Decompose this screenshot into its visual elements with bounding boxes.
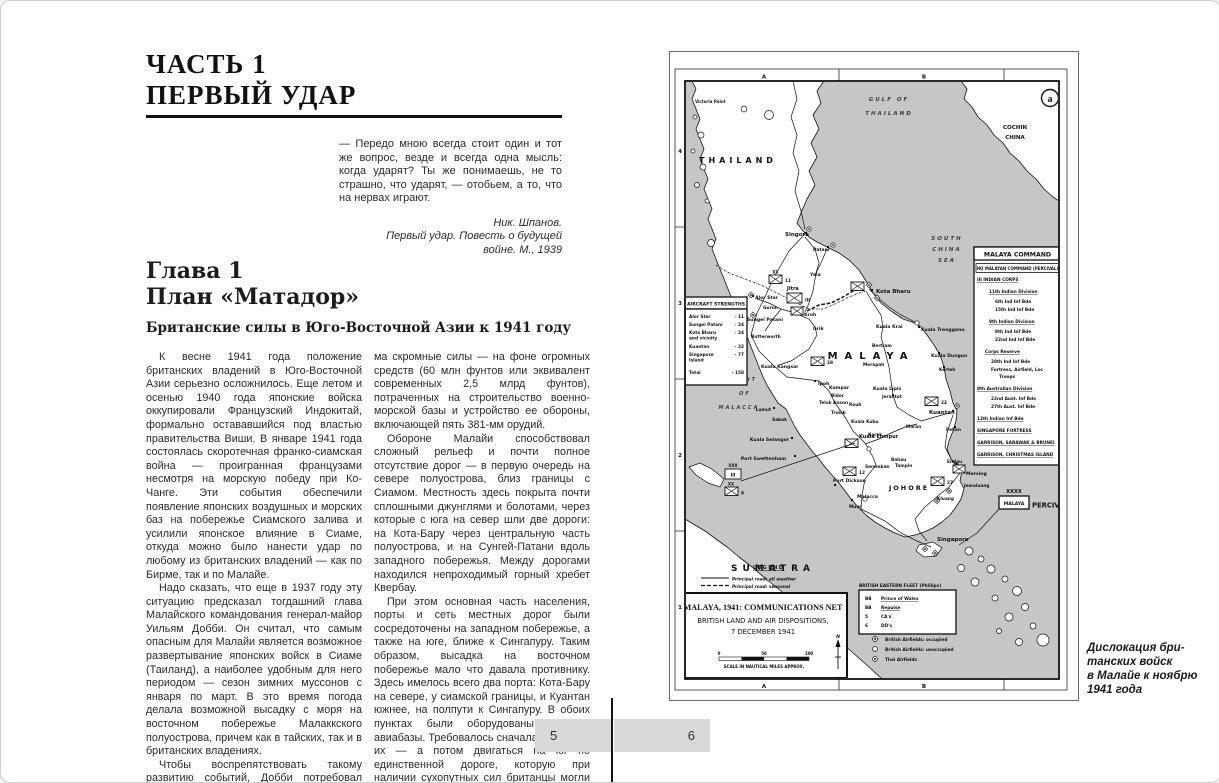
svg-text:SEA: SEA — [938, 258, 956, 264]
svg-text:XX: XX — [772, 270, 778, 275]
svg-text:12th Indian Inf Bde: 12th Indian Inf Bde — [977, 416, 1024, 422]
page-number-left: 5 — [550, 728, 557, 743]
paragraph: Надо сказать, что еще в 1937 году эту си… — [146, 582, 362, 759]
svg-text:Malacca: Malacca — [857, 494, 878, 500]
svg-text:Lumut: Lumut — [756, 407, 771, 413]
svg-text:27: 27 — [947, 480, 953, 486]
svg-text:2: 2 — [678, 453, 682, 459]
svg-text:AIRCRAFT STRENGTHS: AIRCRAFT STRENGTHS — [687, 302, 745, 308]
footer-bar-left: 5 — [535, 719, 612, 752]
svg-text:Kuala Kangsar: Kuala Kangsar — [761, 364, 799, 370]
svg-text:7 DECEMBER 1941: 7 DECEMBER 1941 — [731, 628, 795, 636]
svg-text:Yala: Yala — [809, 272, 821, 278]
svg-text:- 24: - 24 — [735, 322, 744, 328]
svg-text:MALAYA: MALAYA — [1004, 501, 1025, 507]
paragraph: К весне 1941 года положение британских в… — [146, 351, 362, 582]
svg-text:- 24: - 24 — [735, 330, 744, 336]
svg-text:B: B — [922, 684, 926, 690]
svg-text:Alor Star: Alor Star — [689, 314, 711, 320]
svg-text:- 158: - 158 — [732, 370, 744, 376]
svg-text:Kuala Lipis: Kuala Lipis — [873, 386, 901, 392]
svg-text:and vicinity: and vicinity — [689, 336, 717, 342]
svg-text:Fortress, Airfield, Loc: Fortress, Airfield, Loc — [991, 367, 1044, 373]
svg-text:11th Indian Division: 11th Indian Division — [989, 289, 1038, 295]
map-sheet: A B A B 4 3 2 1 — [669, 51, 1079, 701]
svg-text:Tampin: Tampin — [895, 463, 912, 469]
svg-text:SCALE IN NAUTICAL MILES APPROX: SCALE IN NAUTICAL MILES APPROX. — [724, 664, 805, 669]
aircraft-strengths-box: AIRCRAFT STRENGTHS Alor Star- 11 Sungei … — [685, 297, 747, 385]
svg-text:XX: XX — [728, 482, 734, 487]
svg-text:Kluang: Kluang — [937, 496, 954, 502]
svg-text:Maran: Maran — [906, 424, 921, 430]
svg-text:Island: Island — [689, 358, 704, 364]
svg-text:SINGAPORE FORTRESS: SINGAPORE FORTRESS — [977, 428, 1032, 434]
svg-text:GULF OF: GULF OF — [869, 97, 910, 103]
svg-text:Mersing: Mersing — [966, 471, 987, 477]
svg-text:- 11: - 11 — [735, 314, 744, 320]
map-caption: Дислокация бри- танских войск в Малайе к… — [1087, 641, 1215, 697]
svg-text:Kuala Kubu: Kuala Kubu — [851, 419, 879, 425]
svg-text:Pekan: Pekan — [946, 427, 961, 433]
svg-text:Sungei Patani: Sungei Patani — [747, 317, 783, 323]
svg-text:Bertram: Bertram — [872, 343, 892, 349]
svg-text:Jerantut: Jerantut — [881, 394, 902, 400]
svg-text:XXX: XXX — [728, 463, 737, 468]
svg-text:- 77: - 77 — [735, 352, 744, 358]
svg-text:11: 11 — [785, 278, 791, 284]
svg-text:BB: BB — [865, 605, 872, 611]
svg-text:LEGEND: LEGEND — [753, 565, 784, 571]
svg-text:SOUTH: SOUTH — [931, 236, 962, 242]
svg-text:Kuala Selangor: Kuala Selangor — [750, 437, 790, 443]
svg-text:CA's: CA's — [881, 614, 892, 620]
chapter-title: План «Матадор» — [146, 284, 359, 310]
svg-text:THAILAND: THAILAND — [865, 111, 913, 117]
svg-text:Principal road: seasonal: Principal road: seasonal — [732, 584, 791, 590]
svg-text:BB: BB — [865, 596, 872, 602]
svg-text:British Airfields: unoccupied: British Airfields: unoccupied — [885, 647, 954, 653]
svg-text:1: 1 — [678, 605, 682, 611]
svg-text:Ipoh: Ipoh — [818, 381, 829, 387]
spine-divider — [611, 698, 613, 782]
svg-text:CHINA: CHINA — [1005, 135, 1025, 141]
svg-text:50: 50 — [761, 651, 767, 656]
svg-text:12: 12 — [859, 470, 865, 476]
chapter-title-block: Глава 1 План «Матадор» — [146, 258, 359, 310]
svg-text:Kuala Lumpur: Kuala Lumpur — [859, 434, 899, 440]
svg-text:British Airfields: occupied: British Airfields: occupied — [885, 637, 948, 643]
svg-text:Principal road: all weather: Principal road: all weather — [732, 577, 797, 583]
svg-text:III: III — [805, 298, 810, 304]
svg-text:a: a — [1048, 94, 1053, 105]
svg-text:GARRISON, SARAWAK & BRUNEI: GARRISON, SARAWAK & BRUNEI — [977, 440, 1055, 446]
svg-text:Port Dickson: Port Dickson — [833, 478, 866, 484]
svg-text:BRITISH LAND AND AIR DISPOSITI: BRITISH LAND AND AIR DISPOSITIONS, — [697, 617, 828, 625]
svg-text:4: 4 — [678, 149, 682, 155]
svg-text:Kuantan: Kuantan — [689, 344, 709, 350]
svg-text:III INDIAN CORPS: III INDIAN CORPS — [977, 277, 1018, 283]
svg-text:III: III — [731, 473, 736, 479]
svg-text:Kerteh: Kerteh — [939, 367, 955, 373]
body-text: К весне 1941 года положение британских в… — [146, 351, 590, 783]
svg-text:Trolak: Trolak — [831, 410, 846, 416]
svg-text:OF: OF — [739, 391, 751, 397]
svg-text:Telok Anson: Telok Anson — [819, 400, 848, 406]
svg-text:27th Aust. Inf Bde: 27th Aust. Inf Bde — [991, 404, 1035, 410]
svg-text:Seremban: Seremban — [865, 464, 890, 470]
svg-text:JOHORE: JOHORE — [888, 484, 929, 492]
epigraph: — Передо мною всегда стоит один и тот же… — [339, 138, 562, 257]
svg-text:Bidor: Bidor — [831, 393, 845, 399]
svg-text:Sabak: Sabak — [772, 417, 787, 423]
part-kicker: ЧАСТЬ 1 — [146, 49, 562, 80]
svg-text:3: 3 — [678, 301, 682, 307]
page-number-right: 6 — [688, 728, 695, 743]
svg-text:22: 22 — [941, 400, 947, 406]
svg-text:Sungei Patani: Sungei Patani — [689, 322, 723, 328]
footer-bar-right: 6 — [614, 719, 710, 752]
svg-text:Bahau: Bahau — [891, 457, 906, 463]
section-heading: Британские силы в Юго-Восточной Азии к 1… — [146, 320, 576, 336]
svg-text:6: 6 — [865, 623, 868, 629]
paragraph: Обороне Малайи способствовал сложный рел… — [374, 433, 590, 596]
svg-text:GARRISON, CHRISTMAS ISLAND: GARRISON, CHRISTMAS ISLAND — [977, 452, 1054, 458]
svg-text:Prince of Wales: Prince of Wales — [881, 596, 919, 602]
malaya-map: A B A B 4 3 2 1 — [669, 51, 1079, 701]
svg-text:A: A — [762, 75, 767, 81]
svg-text:HQ MALAYAN COMMAND (PERCIVAL): HQ MALAYAN COMMAND (PERCIVAL) — [977, 266, 1059, 271]
svg-text:MALACCA: MALACCA — [719, 405, 760, 411]
svg-text:B: B — [922, 75, 926, 81]
svg-text:Merapah: Merapah — [863, 362, 884, 368]
svg-text:Kuala Krai: Kuala Krai — [876, 324, 903, 330]
svg-text:5: 5 — [865, 614, 868, 620]
part-title-block: ЧАСТЬ 1 ПЕРВЫЙ УДАР — [146, 49, 562, 118]
svg-text:28th Ind Inf Bde: 28th Ind Inf Bde — [991, 359, 1030, 365]
svg-text:MALAYA: MALAYA — [828, 351, 915, 362]
svg-text:Kroh: Kroh — [804, 312, 816, 318]
svg-text:Kuantan: Kuantan — [929, 410, 955, 416]
epigraph-attribution: Ник. Шпанов. Первый удар. Повесть о буду… — [339, 217, 562, 258]
svg-text:Jemaluang: Jemaluang — [963, 483, 989, 489]
svg-text:MALAYA COMMAND: MALAYA COMMAND — [984, 252, 1051, 259]
svg-text:Kampar: Kampar — [829, 385, 850, 391]
svg-text:Kuala Trengganu: Kuala Trengganu — [921, 327, 965, 333]
svg-text:9th Indian Division: 9th Indian Division — [989, 319, 1035, 325]
svg-text:8th Australian Division: 8th Australian Division — [977, 386, 1032, 392]
svg-text:Muar: Muar — [849, 504, 862, 510]
book-spread: ЧАСТЬ 1 ПЕРВЫЙ УДАР — Передо мною всегда… — [0, 0, 1219, 783]
svg-text:Alor Star: Alor Star — [755, 295, 779, 301]
svg-text:8th Ind Inf Bde: 8th Ind Inf Bde — [995, 329, 1031, 335]
svg-text:N: N — [836, 634, 840, 640]
epigraph-text: — Передо мною всегда стоит один и тот же… — [339, 138, 562, 206]
svg-text:Raub: Raub — [849, 402, 861, 408]
paragraph: При этом основная часть населения, порты… — [374, 596, 590, 783]
svg-text:Kota Bharu: Kota Bharu — [876, 289, 911, 295]
svg-text:15th Ind Inf Bde: 15th Ind Inf Bde — [995, 307, 1034, 313]
body-column-1: К весне 1941 года положение британских в… — [146, 351, 362, 783]
svg-text:Butterworth: Butterworth — [751, 334, 781, 340]
part-title: ПЕРВЫЙ УДАР — [146, 80, 562, 111]
svg-text:6th Ind Inf Bde: 6th Ind Inf Bde — [995, 299, 1031, 305]
svg-text:DD's: DD's — [881, 623, 892, 629]
paragraph: ма скромные силы — на фоне огромных сред… — [374, 351, 590, 433]
chapter-kicker: Глава 1 — [146, 258, 359, 284]
svg-text:CHINA: CHINA — [932, 247, 962, 253]
svg-text:22nd Aust. Inf Bde: 22nd Aust. Inf Bde — [991, 396, 1036, 402]
svg-text:XXXX: XXXX — [1006, 489, 1022, 495]
svg-text:Port Swettenham: Port Swettenham — [741, 456, 786, 462]
svg-text:Endau: Endau — [947, 459, 962, 465]
inset-letter: a — [1042, 90, 1059, 107]
svg-text:Victoria Point: Victoria Point — [695, 99, 726, 104]
svg-text:Grik: Grik — [813, 326, 825, 332]
malaya-command-box: MALAYA COMMAND HQ MALAYAN COMMAND (PERCI… — [974, 247, 1061, 465]
svg-text:Repulse: Repulse — [881, 605, 900, 611]
svg-text:- 22: - 22 — [735, 344, 744, 350]
paragraph: Чтобы воспрепятствовать такому развитию … — [146, 759, 362, 783]
svg-text:Kota Bharu: Kota Bharu — [689, 330, 716, 336]
svg-text:22nd Ind Inf Bde: 22nd Ind Inf Bde — [995, 337, 1035, 343]
svg-text:Corps Reserve: Corps Reserve — [985, 349, 1020, 355]
svg-text:MALAYA, 1941: COMMUNICATIONS N: MALAYA, 1941: COMMUNICATIONS NET — [684, 603, 843, 612]
svg-text:THAILAND: THAILAND — [699, 156, 777, 165]
svg-text:Singapore: Singapore — [689, 352, 714, 358]
svg-text:100: 100 — [805, 651, 814, 656]
svg-text:Troops: Troops — [999, 374, 1016, 380]
map-title-box: MALAYA, 1941: COMMUNICATIONS NET BRITISH… — [679, 593, 847, 678]
svg-text:Total: Total — [689, 370, 701, 376]
svg-text:0: 0 — [718, 651, 721, 656]
svg-text:BRITISH EASTERN FLEET (Phillip: BRITISH EASTERN FLEET (Phillips) — [859, 583, 941, 589]
fleet-box: BRITISH EASTERN FLEET (Phillips) BBPrinc… — [859, 583, 956, 634]
svg-text:Jitra: Jitra — [786, 286, 799, 292]
svg-text:COCHIN: COCHIN — [1003, 125, 1027, 131]
svg-text:Singapore: Singapore — [937, 537, 969, 543]
svg-text:Thai Airfields: Thai Airfields — [885, 657, 917, 663]
svg-text:A: A — [762, 684, 767, 690]
svg-text:Kuala Dungun: Kuala Dungun — [931, 353, 967, 359]
svg-text:9: 9 — [741, 491, 744, 497]
svg-text:Gurun: Gurun — [763, 305, 778, 311]
